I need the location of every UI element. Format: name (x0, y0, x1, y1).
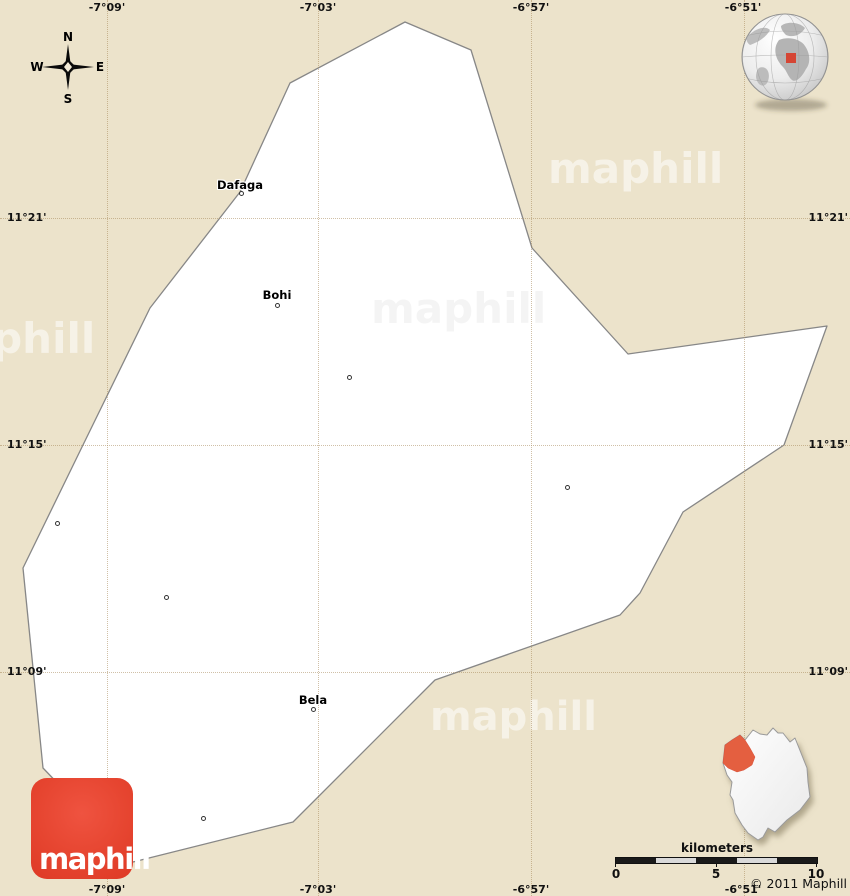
parallel-gridline (0, 672, 850, 673)
town-label-bela: Bela (299, 693, 327, 707)
meridian-label-top: -7°09' (89, 1, 125, 14)
parallel-label-right: 11°15' (809, 438, 848, 451)
meridian-label-top: -6°57' (513, 1, 549, 14)
parallel-label-right: 11°21' (809, 211, 848, 224)
compass-n: N (63, 30, 73, 44)
town-marker-bela (311, 707, 316, 712)
scale-segment (616, 858, 656, 863)
town-label-dafaga: Dafaga (217, 178, 263, 192)
meridian-gridline (107, 0, 108, 896)
scale-value-0: 0 (612, 867, 620, 881)
town-marker-bohi (275, 303, 280, 308)
compass-w: W (30, 60, 43, 74)
settlement-dot (55, 521, 60, 526)
meridian-label-bottom: -7°03' (300, 883, 336, 896)
parallel-label-left: 11°21' (7, 211, 46, 224)
maphill-logo[interactable]: maphill (31, 778, 133, 879)
scale-value-5: 5 (712, 867, 720, 881)
scale-segment (737, 858, 777, 863)
scale-bar-title: kilometers (614, 841, 820, 855)
town-label-bohi: Bohi (263, 288, 292, 302)
compass-s: S (64, 92, 73, 106)
meridian-label-top: -7°03' (300, 1, 336, 14)
maphill-logo-text: maphill (39, 845, 150, 874)
compass-e: E (96, 60, 104, 74)
scale-segment (656, 858, 696, 863)
scale-segment (777, 858, 817, 863)
meridian-label-bottom: -6°57' (513, 883, 549, 896)
parallel-gridline (0, 445, 850, 446)
parallel-gridline (0, 218, 850, 219)
meridian-gridline (531, 0, 532, 896)
globe-location-marker (786, 53, 796, 63)
copyright-notice: © 2011 Maphill (750, 876, 847, 891)
settlement-dot (201, 816, 206, 821)
parallel-label-left: 11°09' (7, 665, 46, 678)
district-locator-map (700, 720, 830, 852)
parallel-label-left: 11°15' (7, 438, 46, 451)
compass-rose: N E S W (28, 26, 108, 106)
globe-locator (739, 12, 835, 116)
settlement-dot (565, 485, 570, 490)
parallel-label-right: 11°09' (809, 665, 848, 678)
classic-style-simple-map: maphill maphill maphill maphill -7°09' -… (0, 0, 850, 896)
globe-shadow (755, 99, 827, 111)
settlement-dot (164, 595, 169, 600)
meridian-label-bottom: -7°09' (89, 883, 125, 896)
meridian-gridline (318, 0, 319, 896)
settlement-dot (347, 375, 352, 380)
